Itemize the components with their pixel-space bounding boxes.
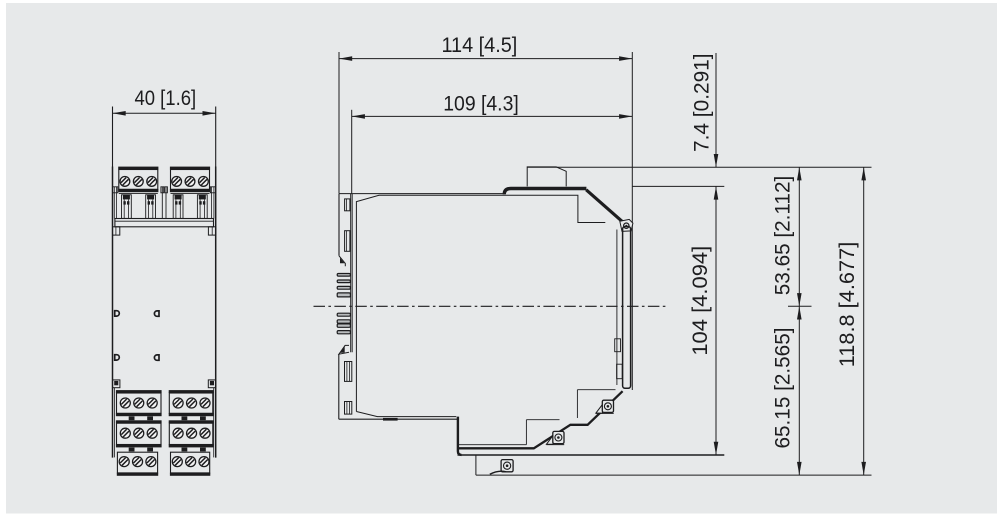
svg-text:7.4 [0.291]: 7.4 [0.291] <box>690 53 714 152</box>
svg-text:40 [1.6]: 40 [1.6] <box>134 86 196 110</box>
svg-text:53.65 [2.112]: 53.65 [2.112] <box>771 176 795 296</box>
svg-text:109 [4.3]: 109 [4.3] <box>443 92 519 116</box>
svg-text:104 [4.094]: 104 [4.094] <box>688 246 712 356</box>
svg-text:65.15 [2.565]: 65.15 [2.565] <box>771 328 795 449</box>
svg-text:114 [4.5]: 114 [4.5] <box>441 33 517 57</box>
svg-text:118.8 [4.677]: 118.8 [4.677] <box>835 242 859 368</box>
